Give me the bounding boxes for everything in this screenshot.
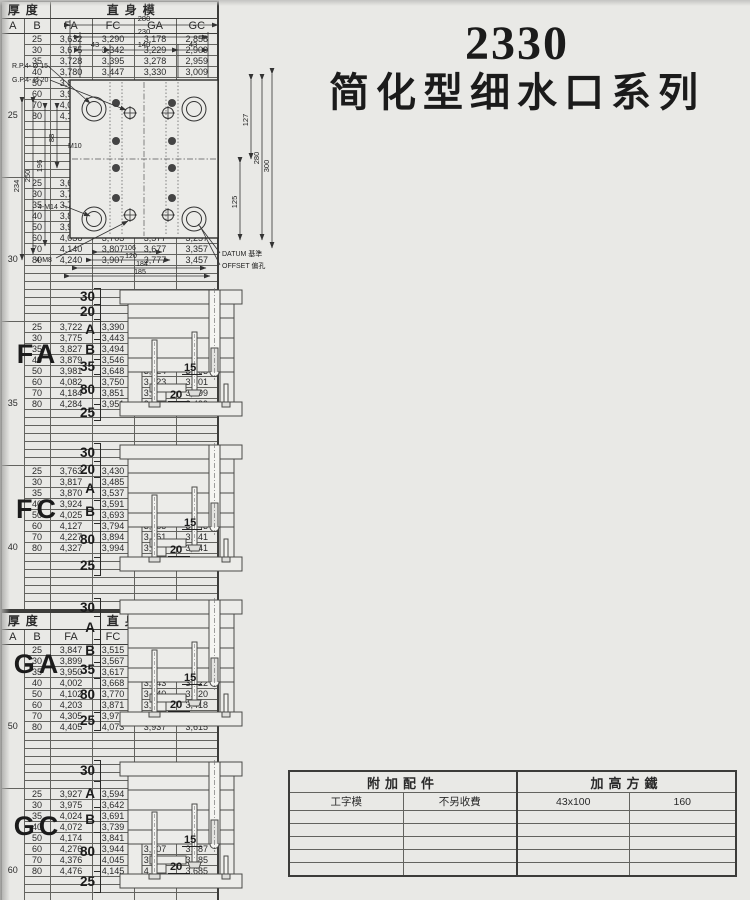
blank-cell [289,811,403,824]
model-number: 2330 [292,18,742,70]
dim-label: B [66,807,100,833]
a-value-cell: 35 [1,322,24,466]
blank-cell [24,578,50,586]
dim-230: 230 [138,27,151,36]
blank-cell [403,824,517,837]
dim-label: 35 [66,662,100,678]
blank-cell [24,426,50,434]
dim-88: 88 [47,134,56,142]
blank-cell [289,824,403,837]
blank-cell [403,850,517,863]
blank-cell [629,850,736,863]
blank-cell [50,586,92,594]
blank-cell [289,863,403,877]
blank-cell [50,893,92,900]
dim-label: 80 [66,678,100,712]
blank-cell [134,741,176,749]
a-value-cell: 30 [1,178,24,322]
blank-cell [517,850,629,863]
blank-cell [92,741,134,749]
a-value-cell: 40 [1,466,24,611]
dim-184: 184 [136,261,148,268]
blank-cell [50,426,92,434]
blank-cell [629,824,736,837]
dim-43-left: 43 [91,40,99,49]
blank-cell [92,749,134,757]
section-FC: FC3020AB80251520 [10,443,266,575]
blank-cell [50,733,92,741]
inner-dim-15: 15 [182,362,202,375]
blank-cell [24,741,50,749]
blank-cell [629,837,736,850]
dim-label: 25 [66,404,100,420]
mold-cross-section-FA: 1520 [106,288,258,420]
blank-cell [92,733,134,741]
a-value-cell: 25 [1,34,24,178]
extras-cell: 工字模 [289,793,403,811]
dim-127: 127 [241,114,250,127]
riser-block-header: 加高方鐵 [517,771,736,793]
accessories-table: 附加配件加高方鐵工字模不另收費43x100160 [288,770,737,877]
dim-label: 80 [66,374,100,404]
a-value-cell: 50 [1,645,24,789]
blank-cell [134,749,176,757]
dim-label: A [66,781,100,807]
dim-label: 30 [66,760,100,781]
section-GC: GC30AB80251520 [10,760,266,892]
blank-cell [134,434,176,442]
inner-dim-15: 15 [182,672,202,685]
section-GA: GA30AB3580251520 [10,598,266,730]
inner-dim-20: 20 [168,861,190,874]
section-FA: FA3020AB3580251520 [10,288,266,420]
blank-cell [289,850,403,863]
blank-cell [50,434,92,442]
blank-cell [176,749,218,757]
dim-label: 35 [66,359,100,374]
blank-cell [517,863,629,877]
m14-label: 4-M14 [38,204,58,211]
dim-280-right: 280 [252,152,261,165]
blank-cell [24,434,50,442]
dim-106: 106 [124,245,136,252]
blank-cell [24,749,50,757]
inner-dim-20: 20 [168,389,190,402]
blank-cell [176,733,218,741]
dim-label: 80 [66,832,100,871]
title-block: 2330 简化型细水口系列 [292,18,742,116]
extras-cell: 43x100 [517,793,629,811]
blank-cell [134,586,176,594]
mold-cross-section-GC: 1520 [106,760,258,892]
dim-label: 30 [66,443,100,461]
dim-125: 125 [230,196,239,209]
dim-label: A [66,477,100,500]
dim-label: 20 [66,461,100,477]
top-plate-drawing: 280 230 43 140 43 234 250 196 88 300 280… [10,8,282,284]
blank-cell [176,586,218,594]
m8-label: 4-M8 [36,257,52,264]
blank-cell [517,811,629,824]
dim-280-top: 280 [138,14,151,23]
blank-cell [134,893,176,900]
dim-label: 25 [66,712,100,730]
inner-dim-15: 15 [182,517,202,530]
scan-top-shadow [0,0,750,6]
dim-140: 140 [138,40,151,49]
dim-120: 120 [125,253,137,260]
blank-cell [24,893,50,900]
a-value-cell: 60 [1,789,24,900]
dim-label: A [66,616,100,639]
dimension-labels-FC: 3020AB8025 [66,443,101,575]
dimension-labels-GA: 30AB358025 [66,598,101,730]
dim-label: 30 [66,598,100,616]
blank-cell [517,824,629,837]
blank-cell [403,811,517,824]
dim-label: B [66,339,100,359]
blank-cell [92,893,134,900]
blank-cell [289,837,403,850]
dim-label: 20 [66,304,100,319]
blank-cell [92,434,134,442]
blank-cell [403,837,517,850]
extras-cell: 不另收費 [403,793,517,811]
blank-cell [629,811,736,824]
blank-cell [517,837,629,850]
dim-label: A [66,319,100,339]
blank-cell [92,426,134,434]
dim-label: B [66,500,100,523]
dim-label: 80 [66,523,100,557]
dim-label: B [66,639,100,662]
dimension-labels-FA: 3020AB358025 [66,288,101,420]
blank-cell [50,749,92,757]
blank-cell [134,426,176,434]
blank-cell [134,733,176,741]
blank-cell [176,578,218,586]
mold-cross-section-GA: 1520 [106,598,258,730]
dim-196: 196 [35,160,44,173]
blank-cell [24,586,50,594]
dim-label: 25 [66,871,100,892]
dim-250: 250 [23,170,32,183]
inner-dim-20: 20 [168,544,190,557]
blank-cell [92,586,134,594]
accessories-header: 附加配件 [289,771,517,793]
blank-cell [134,578,176,586]
blank-cell [403,863,517,877]
blank-cell [50,578,92,586]
extras-cell: 160 [629,793,736,811]
offset-label: OFFSET 偏孔 [222,261,265,270]
inner-dim-15: 15 [182,834,202,847]
dim-185: 185 [134,269,146,276]
catalog-page: 2330 简化型细水口系列 [0,0,750,900]
blank-cell [176,434,218,442]
inner-dim-20: 20 [168,699,190,712]
m10-label: M10 [68,143,82,150]
blank-cell [176,893,218,900]
series-name: 简化型细水口系列 [292,70,742,116]
dimension-labels-GC: 30AB8025 [66,760,101,892]
blank-cell [50,741,92,749]
blank-cell [629,863,736,877]
blank-cell [176,426,218,434]
blank-cell [24,733,50,741]
dim-label: 30 [66,288,100,304]
datum-label: DATUM 基準 [222,249,262,258]
dim-label: 25 [66,557,100,575]
mold-cross-section-FC: 1520 [106,443,258,575]
dim-43-right: 43 [189,40,197,49]
blank-cell [92,578,134,586]
dim-300: 300 [262,160,271,173]
blank-cell [176,741,218,749]
